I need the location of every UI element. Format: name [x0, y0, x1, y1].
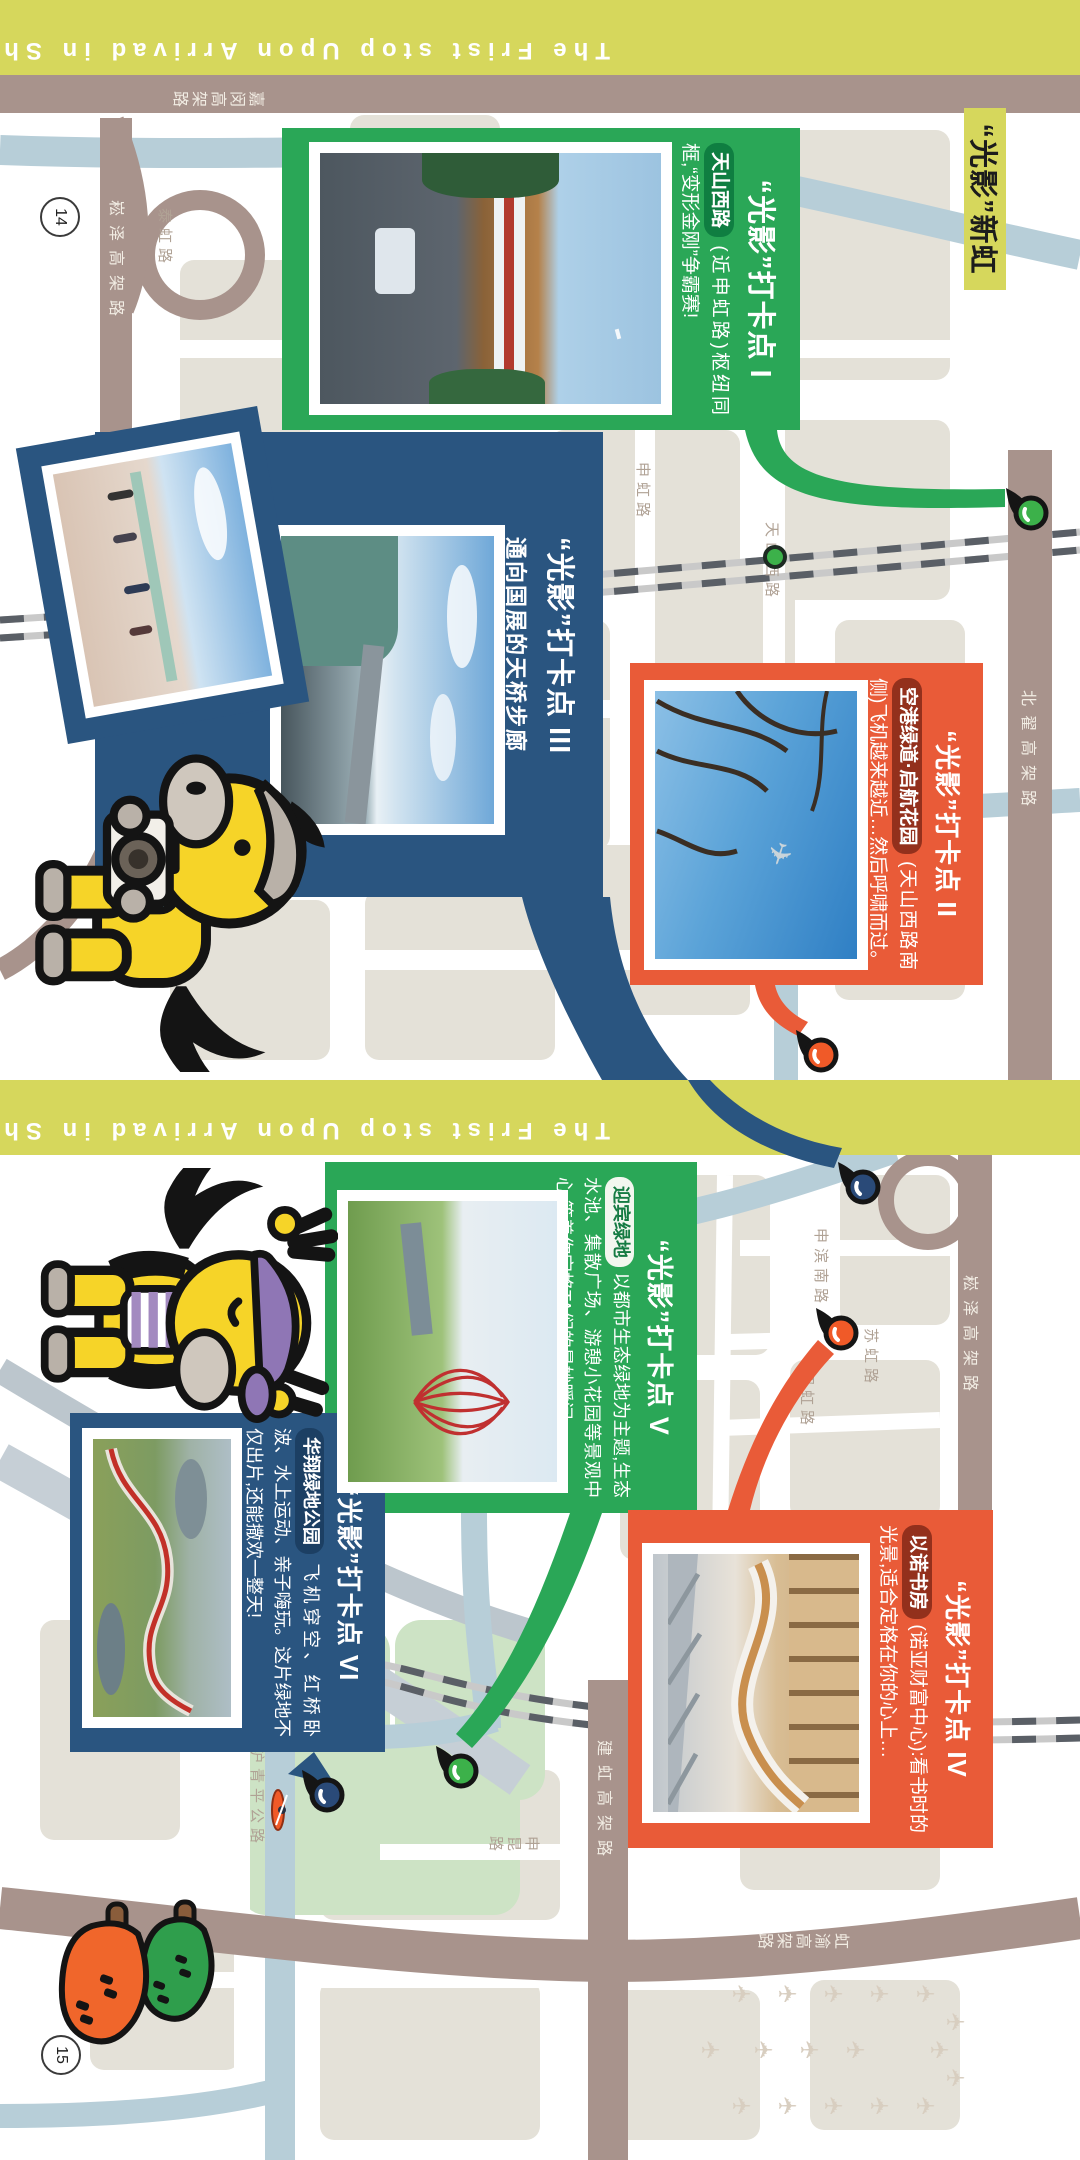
place-pill: 空港绿道·启航花园	[892, 678, 922, 854]
photo-maglev-street	[309, 142, 672, 415]
photo-airplane-trees: ✈	[644, 680, 868, 970]
card-body: 空港绿道·启航花园 (天山西路南侧)飞机越来越近…然后呼啸而过。	[862, 678, 922, 970]
card-title: “光影”打卡点 IV	[940, 1525, 977, 1833]
place-pill: 迎宾绿地	[605, 1177, 634, 1267]
place-pill: 以诺书房	[902, 1525, 932, 1619]
photo-bookstore-staircase	[642, 1543, 870, 1823]
card-title: “光影”打卡点 I	[742, 143, 784, 415]
map-pin-orange	[790, 1024, 842, 1076]
pony-with-camera-mascot	[8, 742, 338, 1072]
card-title: “光影”打卡点 V	[642, 1177, 681, 1498]
card-body: 天山西路 (近申虹路)枢纽同框,“变形金刚”争霸赛!	[674, 143, 734, 415]
page-15: 崧泽高架路 申滨南路 苏虹路 绍虹路 建虹高架路 虹渝高架路 沪青平公路 申昆路…	[0, 1080, 1080, 2160]
card-subtitle: 通向国展的天桥步廊	[501, 537, 533, 882]
map-pin-orange	[810, 1302, 862, 1354]
pony-peace-sign-mascot	[18, 1168, 338, 1478]
place-pill: 天山西路	[704, 143, 734, 237]
rotated-guidebook-spread: { "spread": { "section_title": "“光影”新虹",…	[0, 0, 1080, 2160]
card-body: 以诺书房 (诺亚财富中心):看书时的光景,适合定格在你的心上…	[872, 1525, 932, 1833]
vegetable-blob-mascots	[42, 1892, 222, 2092]
page-14: 嘉闵高架路 北翟高架路 崧泽高架路 泰虹路 天山西路 申虹路 宁虹路 The F…	[0, 0, 1080, 1080]
photo-red-sculpture-park	[337, 1190, 568, 1493]
card-title: “光影”打卡点 II	[930, 678, 967, 970]
map-pin-green	[430, 1740, 482, 1792]
map-pin-navy	[832, 1156, 884, 1208]
photo-plaza-crowd-tilted	[16, 406, 309, 744]
map-pin-navy	[296, 1764, 348, 1816]
card-title: “光影”打卡点 III	[541, 537, 583, 882]
map-pin-green	[1000, 482, 1052, 534]
